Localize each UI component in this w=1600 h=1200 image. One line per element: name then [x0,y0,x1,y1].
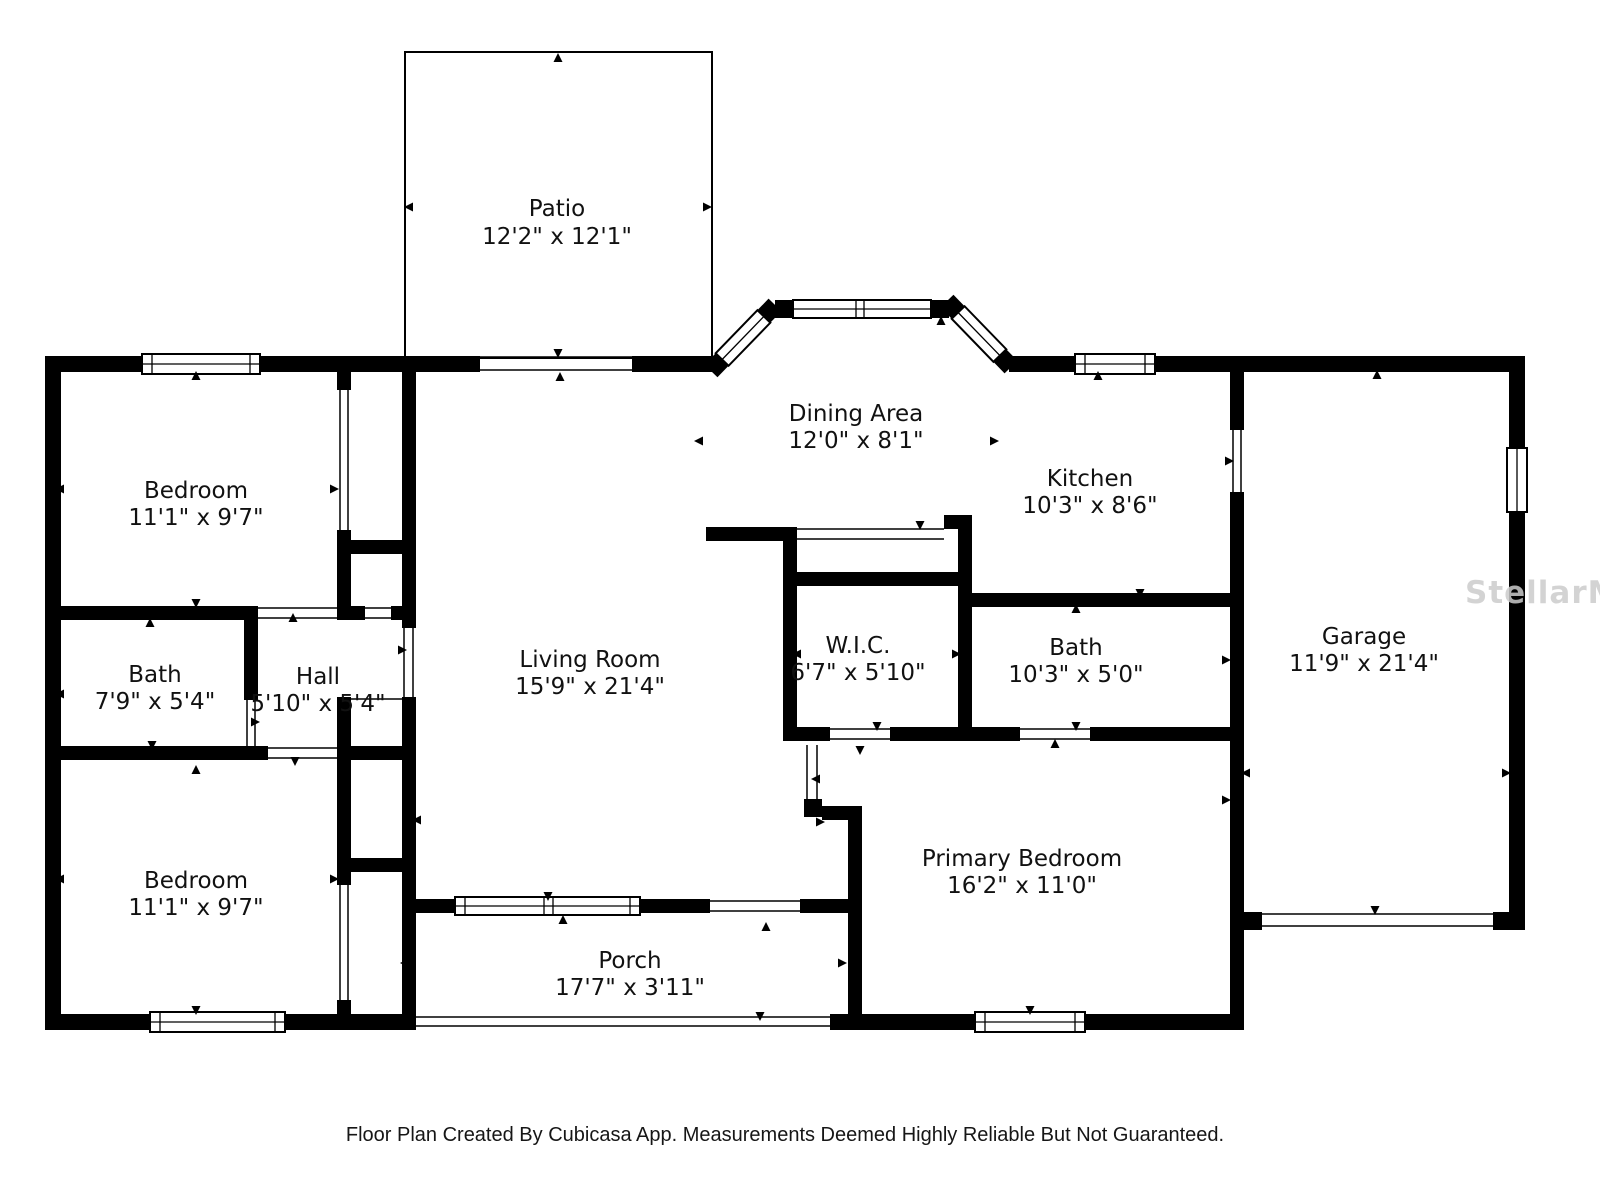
svg-text:12'0" x 8'1": 12'0" x 8'1" [788,428,923,454]
dimension-arrow-icon [554,53,563,62]
room-label-bath-left: Bath 7'9" x 5'4" [95,662,216,715]
svg-text:11'1" x 9'7": 11'1" x 9'7" [128,895,263,921]
dimension-arrow-icon [1222,796,1231,805]
room-label-primary: Primary Bedroom 16'2" x 11'0" [922,846,1122,899]
window-bedroom-bottom [150,1012,285,1032]
room-label-kitchen: Kitchen 10'3" x 8'6" [1022,466,1157,519]
room-label-patio: Patio 12'2" x 12'1" [482,196,632,250]
svg-text:12'2" x 12'1": 12'2" x 12'1" [482,224,632,250]
window-kitchen [1075,354,1155,374]
svg-text:Garage: Garage [1322,624,1406,650]
svg-text:Bath: Bath [1049,635,1102,661]
room-label-porch: Porch 17'7" x 3'11" [555,948,705,1001]
svg-text:15'9" x 21'4": 15'9" x 21'4" [515,674,665,700]
svg-text:16'2" x 11'0": 16'2" x 11'0" [947,873,1097,899]
svg-text:10'3" x 5'0": 10'3" x 5'0" [1008,662,1143,688]
watermark: StellarMLS [1465,575,1600,611]
svg-text:7'9" x 5'4": 7'9" x 5'4" [95,689,216,715]
svg-text:11'1" x 9'7": 11'1" x 9'7" [128,505,263,531]
svg-text:Primary Bedroom: Primary Bedroom [922,846,1122,872]
floor-plan-page: Patio 12'2" x 12'1" Dining Area 12'0" x … [0,0,1600,1200]
dimension-arrow-icon [1051,739,1060,748]
svg-text:6'7" x 5'10": 6'7" x 5'10" [790,660,925,686]
svg-text:11'9" x 21'4": 11'9" x 21'4" [1289,651,1439,677]
dimension-arrow-icon [398,646,407,655]
bay-window [705,295,1018,378]
room-label-bath-right: Bath 10'3" x 5'0" [1008,635,1143,688]
room-label-garage: Garage 11'9" x 21'4" [1289,624,1439,677]
room-label-living: Living Room 15'9" x 21'4" [515,647,665,700]
svg-text:Bedroom: Bedroom [144,868,248,894]
dimension-arrow-icon [1222,656,1231,665]
svg-text:10'3" x 8'6": 10'3" x 8'6" [1022,493,1157,519]
svg-text:Bedroom: Bedroom [144,478,248,504]
footer-disclaimer: Floor Plan Created By Cubicasa App. Meas… [346,1124,1224,1146]
dimension-arrow-icon [762,922,771,931]
svg-text:Hall: Hall [296,664,340,690]
room-label-wic: W.I.C. 6'7" x 5'10" [790,633,925,686]
dimension-arrow-icon [856,746,865,755]
svg-text:Living Room: Living Room [519,647,660,673]
dimension-arrow-icon [703,203,712,212]
svg-text:Kitchen: Kitchen [1047,466,1133,492]
room-label-bedroom-top: Bedroom 11'1" x 9'7" [128,478,263,531]
room-label-hall: Hall 5'10" x 5'4" [250,664,385,717]
dimension-arrow-icon [330,485,339,494]
dimension-arrow-icon [990,437,999,446]
dimension-arrow-icon [556,372,565,381]
door-openings [247,357,1493,1026]
svg-text:Patio: Patio [529,196,585,222]
svg-text:5'10" x 5'4": 5'10" x 5'4" [250,691,385,717]
svg-text:Dining Area: Dining Area [789,401,924,427]
svg-text:Bath: Bath [128,662,181,688]
svg-text:W.I.C.: W.I.C. [826,633,891,659]
dimension-arrow-icon [559,915,568,924]
svg-text:17'7" x 3'11": 17'7" x 3'11" [555,975,705,1001]
dimension-arrow-icon [694,437,703,446]
floor-plan-canvas: Patio 12'2" x 12'1" Dining Area 12'0" x … [0,0,1600,1200]
dimension-arrow-icon [291,757,300,766]
room-label-dining: Dining Area 12'0" x 8'1" [788,401,923,454]
room-label-bedroom-bottom: Bedroom 11'1" x 9'7" [128,868,263,921]
dimension-arrow-icon [811,775,820,784]
dimension-arrow-icon [838,959,847,968]
window-bedroom-top [142,354,260,374]
dimension-arrow-icon [192,765,201,774]
window-garage [1507,448,1527,512]
svg-text:Porch: Porch [598,948,661,974]
